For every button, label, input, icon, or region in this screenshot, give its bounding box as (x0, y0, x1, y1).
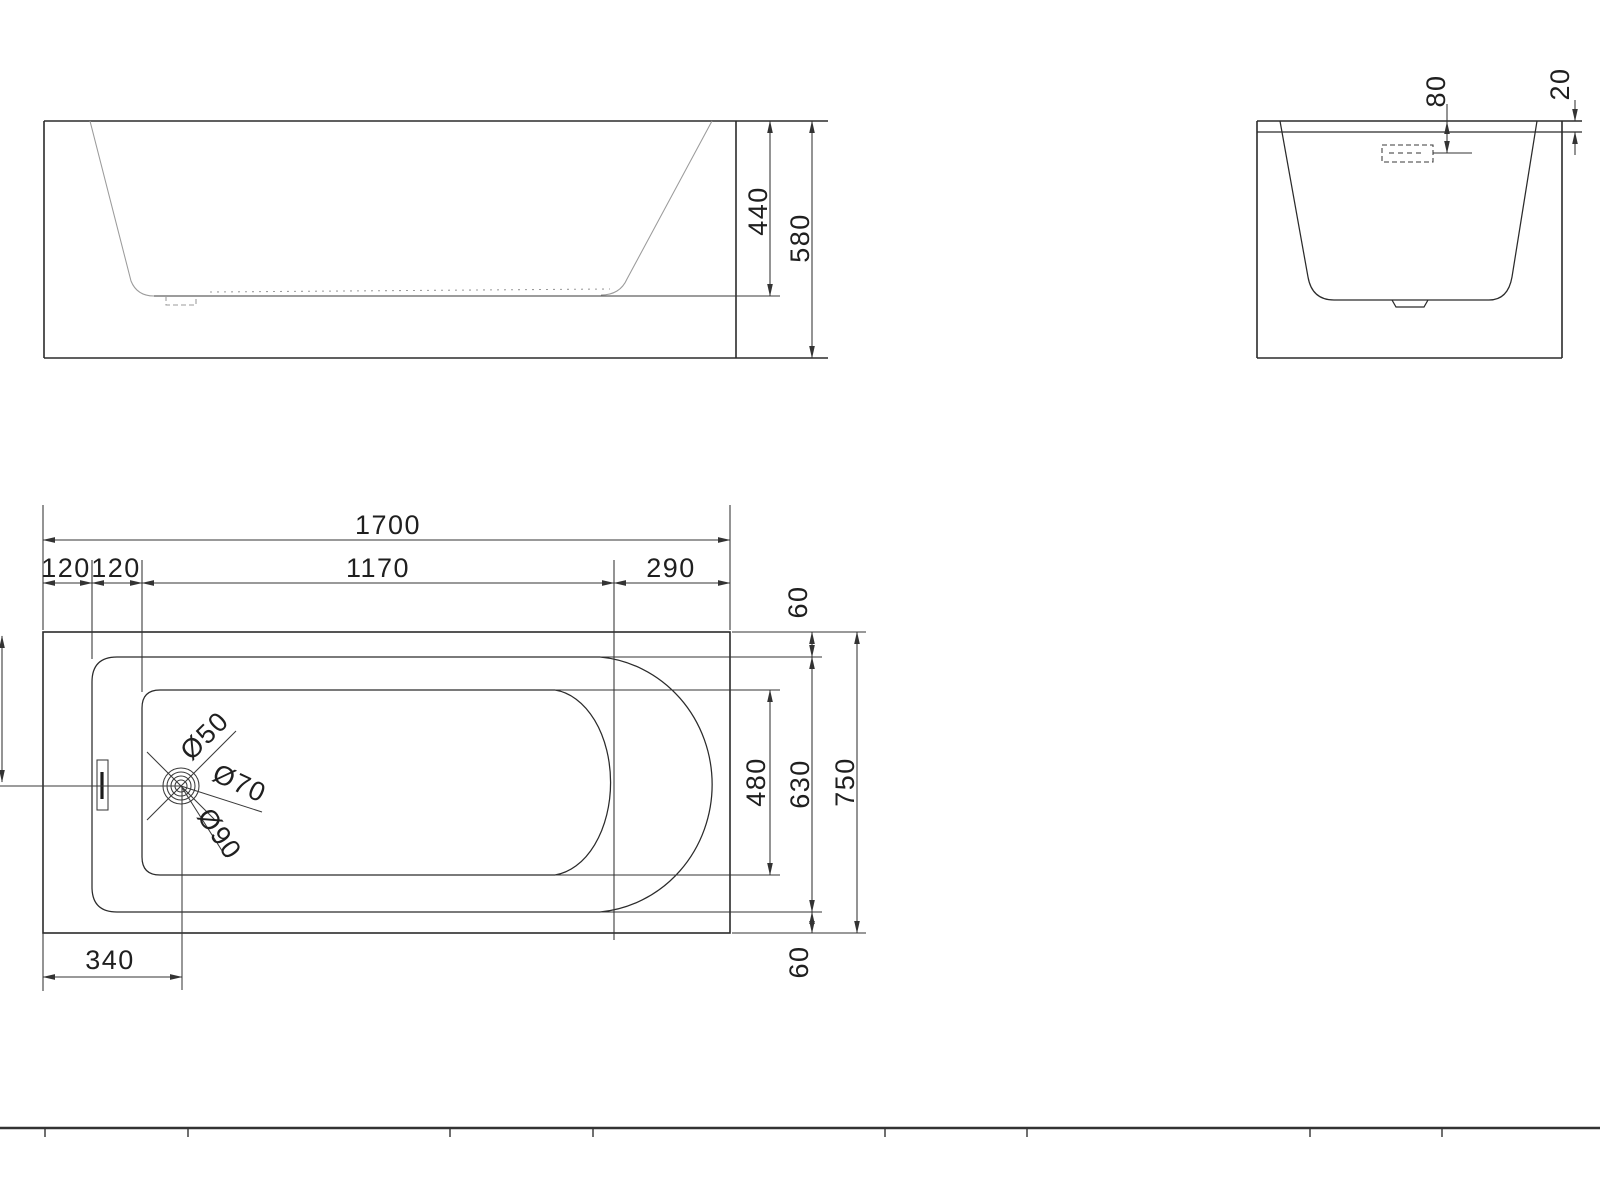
dim-label-80: 80 (1421, 74, 1451, 107)
label-dia50: Ø50 (174, 705, 234, 765)
side-elevation-view: 440 580 (44, 121, 828, 358)
dim-label-440: 440 (743, 186, 773, 236)
dim-label-1700: 1700 (355, 510, 421, 540)
dim-label-580: 580 (785, 213, 815, 263)
dim-label-290: 290 (646, 553, 696, 583)
dim-label-20: 20 (1545, 67, 1575, 100)
plan-rim-outline (92, 657, 712, 912)
dim-label-120b: 120 (91, 553, 141, 583)
label-dia90: Ø90 (191, 803, 247, 866)
end-inner-wall-left (1280, 121, 1334, 300)
dim-label-340: 340 (85, 945, 135, 975)
dim-label-750: 750 (830, 757, 860, 807)
plan-drain: Ø50 Ø70 Ø90 (0, 705, 271, 990)
side-inner-wall-left (90, 121, 154, 296)
end-drain-bump (1392, 300, 1428, 307)
drawing-canvas: 440 580 80 20 (0, 0, 1600, 1200)
sheet-border (0, 1128, 1600, 1137)
plan-outer-rect (43, 632, 730, 933)
end-inner-wall-right (1489, 121, 1537, 300)
label-dia70: Ø70 (208, 758, 271, 809)
side-floor-texture (210, 289, 610, 292)
plan-view: Ø50 Ø70 Ø90 (0, 505, 866, 991)
side-inner-wall-right (601, 121, 712, 295)
dim-label-480: 480 (741, 757, 771, 807)
dim-label-60-top: 60 (783, 585, 813, 618)
plan-extension-lines (43, 505, 866, 991)
side-drain-recess (166, 296, 196, 305)
dim-label-60-bottom: 60 (784, 945, 814, 978)
end-elevation-view: 80 20 (1257, 67, 1582, 358)
dim-label-630: 630 (785, 759, 815, 809)
drawing-sheet: 440 580 80 20 (0, 0, 1600, 1200)
dim-label-1170: 1170 (346, 553, 410, 583)
dim-label-120a: 120 (41, 553, 91, 583)
